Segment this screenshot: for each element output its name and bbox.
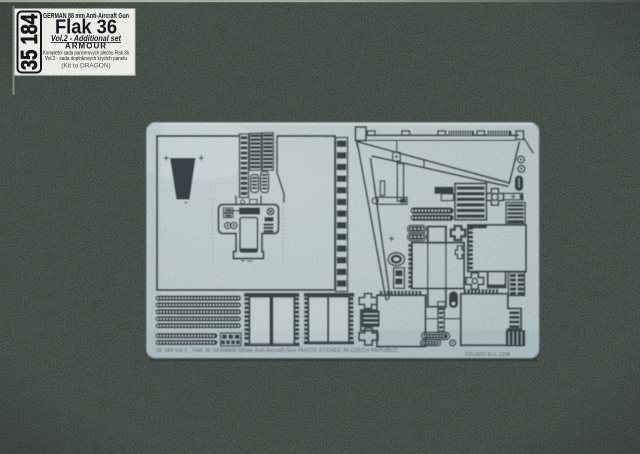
svg-text:35 184 Vol.2 - Flak 36 GERMA: 35 184 Vol.2 - Flak 36 GERMAN 88mm Anti-… xyxy=(156,348,399,354)
svg-text:(Kit to DRAGON): (Kit to DRAGON) xyxy=(61,63,110,70)
svg-text:ARMOUR: ARMOUR xyxy=(65,42,107,51)
svg-text:Vol.2 - sada doplnkovych kryci: Vol.2 - sada doplnkovych krycich panelu xyxy=(45,56,127,62)
svg-text:EDUARD M.A. 1998: EDUARD M.A. 1998 xyxy=(465,352,511,358)
svg-text:35 184: 35 184 xyxy=(16,14,42,70)
